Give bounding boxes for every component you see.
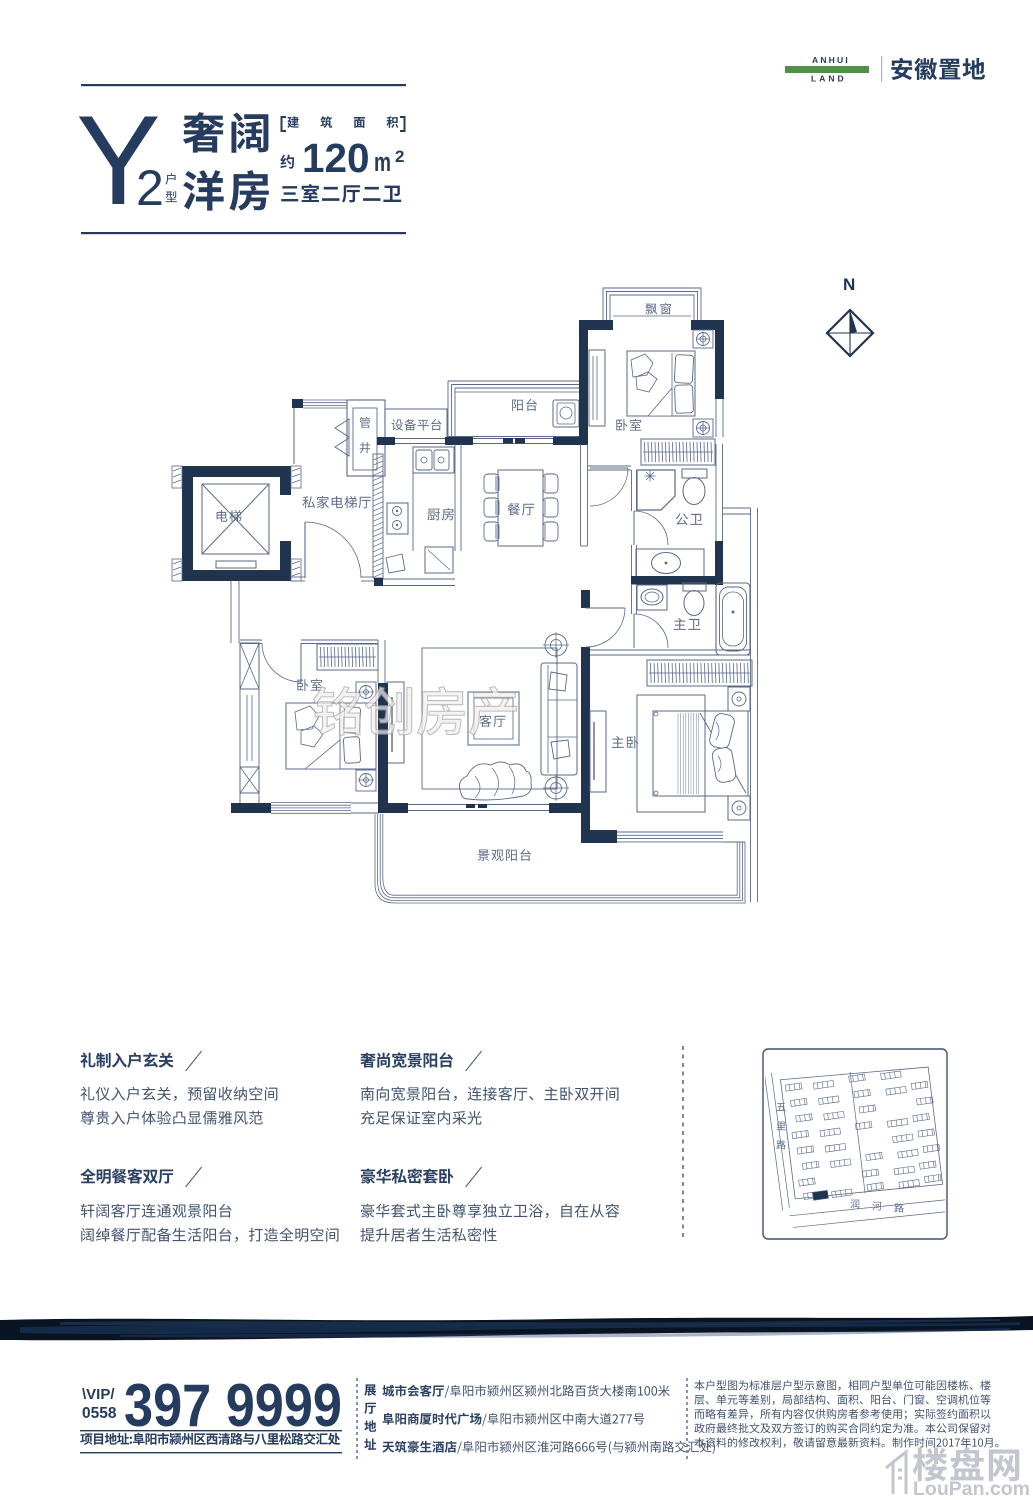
svg-text:120: 120 xyxy=(302,135,370,181)
svg-text:LouPan.com: LouPan.com xyxy=(913,1478,1030,1500)
svg-text:2: 2 xyxy=(395,147,404,166)
svg-text:0558: 0558 xyxy=(82,1405,117,1422)
svg-text:ANHUI: ANHUI xyxy=(812,55,850,65)
svg-text:397 9999: 397 9999 xyxy=(124,1372,342,1439)
svg-text:2: 2 xyxy=(136,160,164,216)
svg-text:LAND: LAND xyxy=(811,74,847,84)
svg-text:m: m xyxy=(374,147,391,177)
svg-text:\VIP/: \VIP/ xyxy=(82,1386,115,1403)
svg-text:N: N xyxy=(843,275,855,294)
